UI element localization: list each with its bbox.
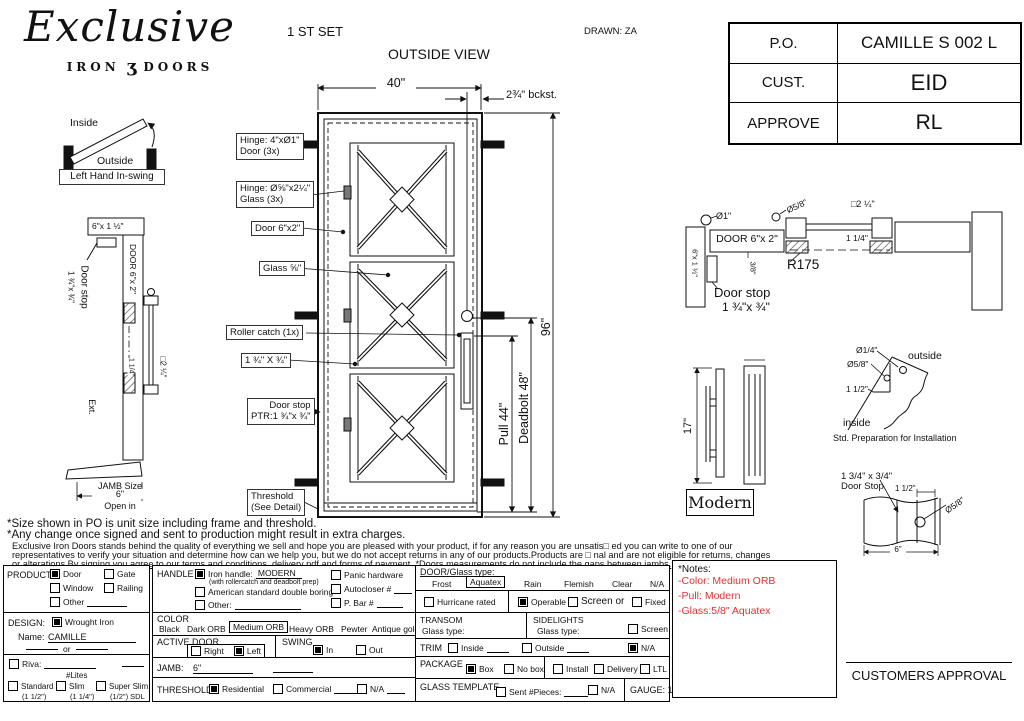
handle-label: HANDLE (157, 569, 194, 579)
callout-hinge-door: Hinge: 4"xØ1" Door (3x) (236, 133, 304, 160)
jamb-blank[interactable] (273, 664, 313, 673)
autocloser-blank[interactable] (394, 585, 412, 594)
design-or-row: or (26, 644, 108, 654)
fixed-checkbox[interactable]: Fixed (632, 597, 666, 607)
left-dim-114: 1 1/4" (128, 358, 135, 376)
glass-template-label: GLASS TEMPLATE (420, 682, 499, 692)
pbar-blank[interactable] (377, 599, 403, 608)
color-heavy-orb[interactable]: Heavy ORB (289, 624, 334, 634)
stop-detail-dim6: 6" (890, 545, 906, 554)
riva-dash (122, 666, 144, 667)
swing-caption: Left Hand In-swing (59, 169, 165, 185)
product-label: PRODUCT: (7, 570, 53, 580)
design-name-value[interactable]: CAMILLE (48, 632, 136, 643)
pull-mark (461, 333, 473, 409)
riva-blank[interactable] (44, 660, 96, 669)
callout-text: PTR:1 ¾"x ¾" (251, 411, 311, 422)
head-door-label: DOOR 6"x 2" (712, 233, 782, 245)
callout-glass: Glass ⅝" (259, 261, 305, 276)
design-section: DESIGN: Wrought Iron Name: CAMILLE or (3, 612, 150, 656)
prep-inside-label: inside (843, 417, 870, 429)
door-spec-sheet: Exclusive IRON ʒ DOORS 1 ST SET DRAWN: Z… (0, 0, 1024, 721)
trim-section: TRIM Inside Outside N/A (415, 638, 670, 658)
logo-script: Exclusive (24, 2, 235, 51)
threshold-commercial-checkbox[interactable]: Commercial (273, 684, 358, 694)
dim-height: 96" (539, 318, 553, 336)
handle-section: HANDLE Iron handle:MODERN (with rollerca… (152, 565, 417, 614)
screen-or-checkbox[interactable]: Screen or (568, 596, 624, 607)
handle-dim: 17" (682, 418, 694, 434)
cust-label: CUST. (730, 64, 838, 104)
package-box-checkbox[interactable]: Box (466, 664, 494, 674)
door-elevation (295, 113, 504, 517)
threshold-label: THRESHOLD (157, 685, 213, 695)
callout-door-frame: Door 6"x2" (251, 221, 304, 236)
american-boring-checkbox[interactable]: American standard double boring (195, 587, 333, 597)
handle-views (693, 360, 765, 484)
product-other-blank[interactable] (87, 598, 127, 607)
threshold-commercial-blank[interactable] (334, 685, 358, 694)
door-glass-section: DOOR/Glass type: Frost Aquatex Rain Flem… (415, 565, 670, 592)
notes-title: *Notes: (678, 564, 711, 575)
package-label: PACKAGE (420, 659, 463, 669)
callout-text: Glass (3x) (240, 194, 310, 205)
product-railing-checkbox[interactable]: Railing (104, 583, 143, 593)
handle-other-blank[interactable] (235, 601, 301, 610)
head-dia1: Ø1" (716, 211, 731, 221)
dim-backset: 2¾" bckst. (506, 89, 557, 101)
package-nobox-checkbox[interactable]: No box (504, 664, 544, 674)
stop-detail-label2: Door Stop (841, 481, 884, 492)
transom-section: TRANSOM Glass type: SIDELIGHTS Glass typ… (415, 612, 670, 640)
slim-sub: (1 1/4") (70, 692, 94, 701)
drawn-label: DRAWN: ZA (584, 26, 637, 37)
standard-checkbox[interactable]: Standard (8, 681, 53, 691)
panic-checkbox[interactable]: Panic hardware (331, 570, 403, 580)
handle-name-box: Modern (686, 489, 754, 516)
left-ext-label: Ext. (87, 399, 97, 415)
threshold-section: THRESHOLD Residential Commercial N/A (152, 677, 417, 702)
sidelights-glass-label: Glass type: (537, 626, 580, 636)
product-door-checkbox[interactable]: Door (50, 569, 81, 579)
po-label: P.O. (730, 24, 838, 64)
iron-handle-checkbox[interactable]: Iron handle:MODERN (195, 568, 302, 579)
divider (508, 591, 509, 613)
active-right-checkbox[interactable]: Right (191, 646, 224, 656)
note-glass: -Glass:5/8" Aquatex (678, 605, 770, 617)
approval-signature-line[interactable] (846, 662, 1012, 663)
jamb-size-dim: 6" (92, 489, 148, 499)
callout-door-stop: Door stop PTR:1 ¾"x ¾" (247, 398, 315, 425)
design-wrought-checkbox[interactable]: Wrought Iron (52, 617, 114, 627)
package-section: PACKAGE Box No box Install Delivery LTL (415, 656, 670, 680)
view-title: OUTSIDE VIEW (388, 46, 490, 62)
divider (275, 636, 276, 658)
glass-template-section: GLASS TEMPLATE Sent #Pieces: N/A GAUGE: … (415, 678, 670, 702)
callout-text: Hinge: Ø⅝"x2¼" (240, 183, 310, 194)
operable-section: Hurricane rated Operable Screen or Fixed (415, 590, 670, 614)
left-jamb-section (66, 218, 158, 501)
prep-outside-label: outside (908, 350, 942, 362)
callout-roller: Roller catch (1x) (226, 325, 303, 340)
product-other-checkbox[interactable]: Other (50, 597, 127, 607)
active-door-section: ACTIVE DOOR Right Left SWING In Out (152, 635, 417, 659)
cust-value: EID (838, 64, 1020, 104)
set-label: 1 ST SET (287, 24, 343, 39)
trim-outside-checkbox[interactable]: Outside (522, 643, 589, 653)
dim-pull: Pull 44" (497, 403, 511, 446)
prep-dia58: Ø5/8" (847, 359, 868, 369)
callout-hinge-glass: Hinge: Ø⅝"x2¼" Glass (3x) (236, 181, 314, 208)
color-label: COLOR (157, 614, 189, 624)
threshold-residential-checkbox[interactable]: Residential (209, 684, 264, 694)
gauge-label: GAUGE: 14 (630, 685, 678, 695)
left-stop-dim: 1 ¾"x ¾" (67, 271, 76, 303)
glass-na[interactable]: N/A (650, 579, 664, 589)
note-pull: -Pull: Modern (678, 590, 740, 602)
fleur-icon: ʒ (127, 57, 137, 77)
glass-clear[interactable]: Clear (612, 579, 632, 589)
logo-doors: DOORS (143, 60, 213, 74)
color-section: COLOR Black Dark ORB Medium ORB Heavy OR… (152, 612, 417, 637)
lites-label: #Lites (66, 671, 87, 680)
left-stop-label: Door stop (79, 265, 90, 308)
prep-dim112: 1 1/2" (846, 384, 868, 394)
transom-glass-label: Glass type: (422, 626, 465, 636)
divider (544, 657, 545, 679)
glass-flemish[interactable]: Flemish (564, 579, 594, 589)
template-na-checkbox[interactable]: N/A (588, 685, 615, 695)
operable-checkbox[interactable]: Operable (518, 597, 566, 607)
jamb-label: JAMB: (157, 663, 184, 673)
jamb-value[interactable]: 6" (193, 663, 253, 674)
package-install-checkbox[interactable]: Install (553, 664, 588, 674)
standard-sub: (1 1/2") (22, 692, 46, 701)
left-door-label: DOOR 6"x 2" (128, 244, 138, 294)
callout-bar: 1 ¾" X ¾" (241, 353, 291, 368)
disclaimer-line2: *Any change once signed and sent to prod… (7, 529, 405, 541)
divider (624, 679, 625, 701)
po-value: CAMILLE S 002 L (838, 24, 1020, 64)
swing-label: SWING (282, 637, 313, 647)
glass-aquatex[interactable]: Aquatex (466, 576, 505, 588)
callout-threshold: Threshold (See Detail) (247, 489, 305, 516)
color-pewter[interactable]: Pewter (341, 624, 367, 634)
head-stop-label: Door stop (714, 285, 770, 300)
jamb-section: JAMB: 6" (152, 657, 417, 679)
approval-table: P.O. CAMILLE S 002 L CUST. EID APPROVE R… (728, 22, 1022, 145)
prep-caption: Std. Preparation for Installation (833, 433, 957, 443)
design-label: DESIGN: (8, 618, 45, 628)
left-header-dim: 6"x 1 ½" (92, 221, 124, 231)
color-medium-orb[interactable]: Medium ORB (229, 621, 288, 633)
design-name-label: Name: (18, 632, 45, 642)
trim-outside-blank[interactable] (567, 644, 589, 653)
swing-inside-label: Inside (70, 117, 98, 129)
approve-label: APPROVE (730, 103, 838, 143)
open-in-label: Open in (92, 501, 148, 511)
prep-dia14: Ø1/4" (856, 345, 877, 355)
head-sq-dim: □2 ¼" (851, 199, 875, 209)
swing-out-checkbox[interactable]: Out (356, 645, 383, 655)
color-dark-orb[interactable]: Dark ORB (187, 624, 226, 634)
note-color: -Color: Medium ORB (678, 575, 775, 587)
notes-section: *Notes: -Color: Medium ORB -Pull: Modern… (672, 560, 837, 698)
threshold-na-blank[interactable] (387, 685, 405, 694)
sidelights-label: SIDELIGHTS (533, 615, 584, 625)
active-door-group: Right Left (187, 644, 265, 658)
divider (526, 613, 527, 639)
trim-inside-checkbox[interactable]: Inside (448, 643, 509, 653)
riva-section: Riva: #Lites Standard (1 1/2") Slim (1 1… (3, 654, 150, 702)
stop-detail-dim112: 1 1/2" (895, 484, 916, 493)
deadbolt-mark (462, 311, 473, 322)
super-slim-sub: (1/2") SDL (110, 692, 145, 701)
left-dim-sq: □2 ¼" (159, 356, 168, 377)
head-dim38: 3/8" (749, 261, 758, 274)
logo-subline: IRON ʒ DOORS (60, 57, 220, 77)
color-antique-gold[interactable]: Antique gold (372, 624, 419, 634)
head-r175: R175 (787, 257, 819, 272)
head-side-dim: 6"x 1 ½" (691, 249, 700, 277)
hurricane-checkbox[interactable]: Hurricane rated (424, 597, 496, 607)
dim-width: 40" (376, 76, 416, 90)
approval-label: CUSTOMERS APPROVAL (846, 668, 1012, 683)
active-left-checkbox[interactable]: Left (234, 646, 261, 656)
callout-text: Hinge: 4"xØ1" (240, 135, 300, 146)
approve-value: RL (838, 103, 1020, 143)
divider-dash (76, 649, 108, 650)
riva-checkbox[interactable]: Riva: (9, 659, 96, 669)
slim-checkbox[interactable]: Slim (56, 681, 85, 691)
handle-model-value[interactable]: MODERN (256, 568, 302, 579)
callout-text: Threshold (251, 491, 301, 502)
swing-outside-label: Outside (97, 155, 133, 167)
transom-label: TRANSOM (420, 615, 463, 625)
product-window-checkbox[interactable]: Window (50, 583, 93, 593)
glass-frost[interactable]: Frost (432, 579, 451, 589)
pbar-checkbox[interactable]: P. Bar # (331, 598, 403, 608)
door-dimensions (318, 84, 560, 517)
handle-other-checkbox[interactable]: Other: (195, 600, 301, 610)
glass-rain[interactable]: Rain (524, 579, 541, 589)
super-slim-checkbox[interactable]: Super Slim (96, 681, 148, 691)
swing-in-checkbox[interactable]: In (313, 645, 333, 655)
trim-inside-blank[interactable] (487, 644, 509, 653)
sidelights-screen-checkbox[interactable]: Screen (628, 624, 668, 634)
product-gate-checkbox[interactable]: Gate (104, 569, 135, 579)
callout-text: Door stop (251, 400, 311, 411)
callout-text: Door (3x) (240, 146, 300, 157)
template-sent-blank[interactable] (564, 688, 588, 697)
threshold-na-checkbox[interactable]: N/A (357, 684, 405, 694)
product-section: PRODUCT: Door Gate Window Railing Other (3, 565, 150, 614)
template-sent-checkbox[interactable]: Sent #Pieces: (496, 687, 588, 697)
callout-text: (See Detail) (251, 502, 301, 513)
trim-label: TRIM (420, 643, 442, 653)
head-dim114: 1 1/4" (846, 233, 868, 243)
package-ltl-checkbox[interactable]: LTL (640, 664, 667, 674)
dim-deadbolt: Deadbolt 48" (517, 372, 531, 444)
iron-handle-sub: (with rollercatch and deadbolt prep) (209, 579, 319, 586)
trim-na-checkbox[interactable]: N/A (628, 643, 655, 653)
autocloser-checkbox[interactable]: Autocloser # (331, 584, 412, 594)
color-black[interactable]: Black (159, 624, 180, 634)
package-delivery-checkbox[interactable]: Delivery (594, 664, 638, 674)
logo-iron: IRON (67, 60, 120, 74)
divider-dash (26, 649, 58, 650)
head-stop-dim: 1 ¾"x ¾" (722, 300, 770, 314)
